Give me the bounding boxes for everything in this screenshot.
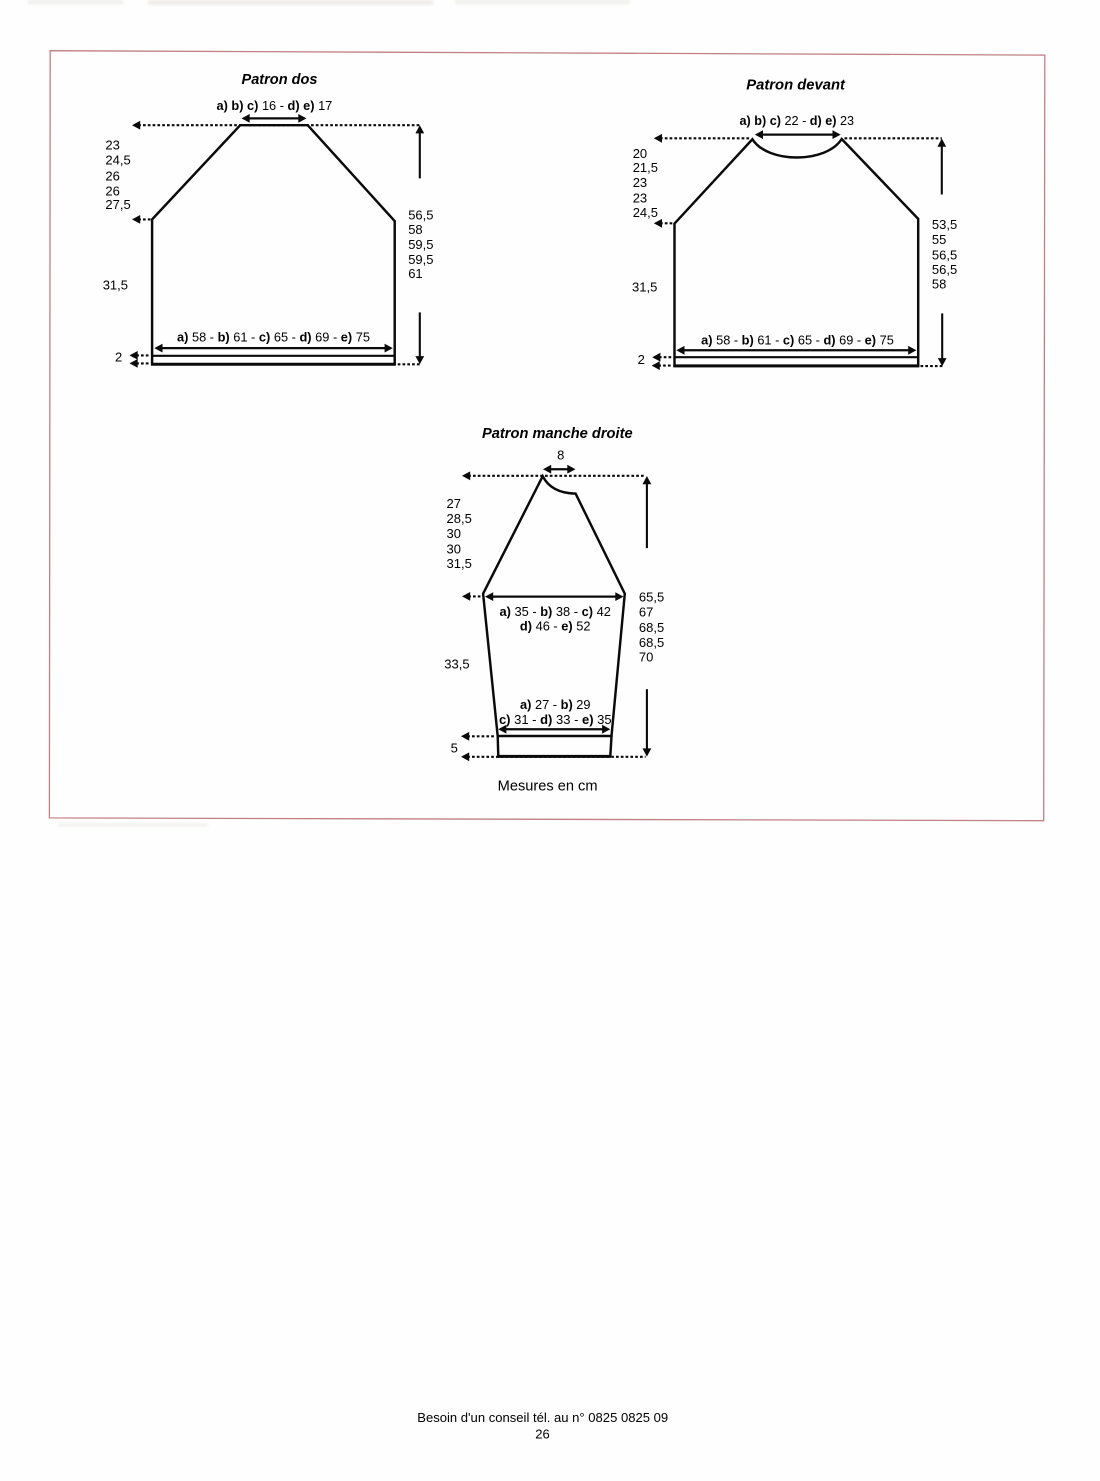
svg-text:2: 2 (115, 350, 122, 365)
svg-text:55: 55 (932, 232, 946, 247)
svg-text:Besoin d'un conseil tél. au n°: Besoin d'un conseil tél. au n° 0825 0825… (417, 1410, 668, 1425)
svg-text:a) 27 - b) 29: a) 27 - b) 29 (520, 697, 591, 712)
svg-text:26: 26 (535, 1426, 549, 1441)
svg-text:a) 58 - b) 61 - c) 65 - d) 69: a) 58 - b) 61 - c) 65 - d) 69 - e) 75 (701, 332, 894, 347)
svg-text:58: 58 (408, 222, 422, 237)
svg-text:26: 26 (105, 168, 119, 183)
svg-text:Mesures en cm: Mesures en cm (498, 779, 598, 795)
svg-text:27: 27 (447, 496, 461, 511)
svg-text:31,5: 31,5 (447, 556, 472, 571)
svg-text:65,5: 65,5 (639, 590, 664, 605)
svg-text:27,5: 27,5 (105, 197, 130, 212)
svg-text:30: 30 (447, 542, 461, 557)
svg-text:59,5: 59,5 (408, 252, 433, 267)
svg-text:53,5: 53,5 (932, 217, 957, 232)
svg-text:c) 31 - d) 33 - e) 35: c) 31 - d) 33 - e) 35 (499, 712, 612, 727)
svg-text:2: 2 (638, 352, 645, 367)
svg-text:24,5: 24,5 (633, 205, 658, 220)
svg-text:a) b) c) 22 - d) e) 23: a) b) c) 22 - d) e) 23 (740, 113, 855, 128)
svg-text:68,5: 68,5 (639, 620, 664, 635)
svg-text:5: 5 (451, 740, 458, 755)
svg-text:a) b) c) 16 - d) e) 17: a) b) c) 16 - d) e) 17 (217, 98, 333, 113)
svg-text:31,5: 31,5 (632, 279, 657, 294)
svg-text:33,5: 33,5 (444, 656, 469, 671)
svg-text:61: 61 (408, 266, 422, 281)
svg-text:23: 23 (105, 138, 119, 153)
svg-text:Patron dos: Patron dos (242, 71, 318, 88)
svg-text:31,5: 31,5 (103, 278, 128, 293)
svg-text:58: 58 (932, 277, 946, 292)
svg-text:d) 46 - e) 52: d) 46 - e) 52 (520, 619, 591, 634)
svg-text:68,5: 68,5 (639, 635, 664, 650)
svg-text:67: 67 (639, 605, 653, 620)
svg-text:59,5: 59,5 (408, 237, 433, 252)
svg-text:a) 58 - b) 61 - c) 65 - d) 69: a) 58 - b) 61 - c) 65 - d) 69 - e) 75 (177, 330, 370, 345)
svg-text:30: 30 (447, 526, 461, 541)
svg-text:8: 8 (557, 447, 564, 462)
svg-text:28,5: 28,5 (447, 511, 472, 526)
svg-text:56,5: 56,5 (932, 262, 957, 277)
svg-text:Patron devant: Patron devant (746, 76, 846, 93)
svg-text:56,5: 56,5 (408, 208, 433, 223)
svg-text:20: 20 (633, 146, 647, 161)
svg-text:a) 35 - b) 38 - c) 42: a) 35 - b) 38 - c) 42 (500, 604, 611, 619)
svg-text:56,5: 56,5 (932, 247, 957, 262)
svg-text:24,5: 24,5 (105, 153, 130, 168)
svg-text:23: 23 (633, 175, 647, 190)
svg-text:21,5: 21,5 (633, 160, 658, 175)
svg-text:70: 70 (639, 650, 653, 665)
svg-text:Patron manche droite: Patron manche droite (482, 425, 633, 442)
svg-text:23: 23 (633, 190, 647, 205)
